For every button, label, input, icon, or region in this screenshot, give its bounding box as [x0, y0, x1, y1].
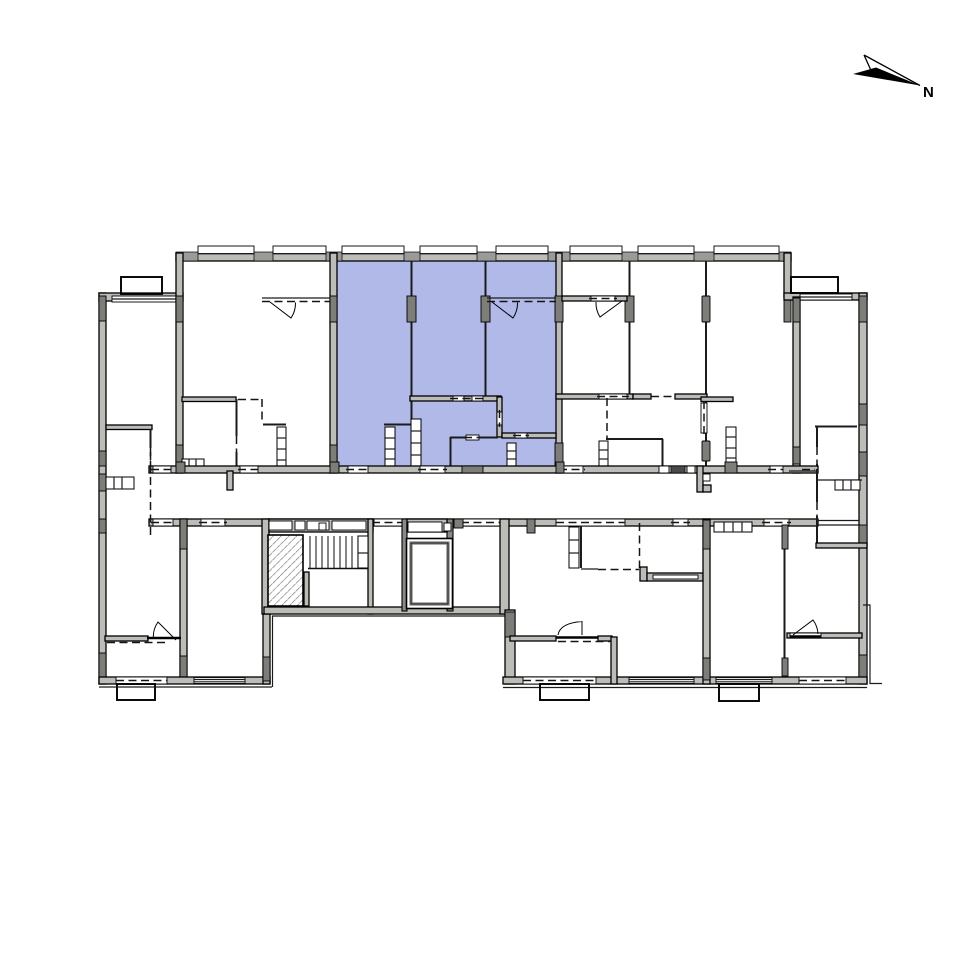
svg-text:N: N [923, 84, 934, 101]
